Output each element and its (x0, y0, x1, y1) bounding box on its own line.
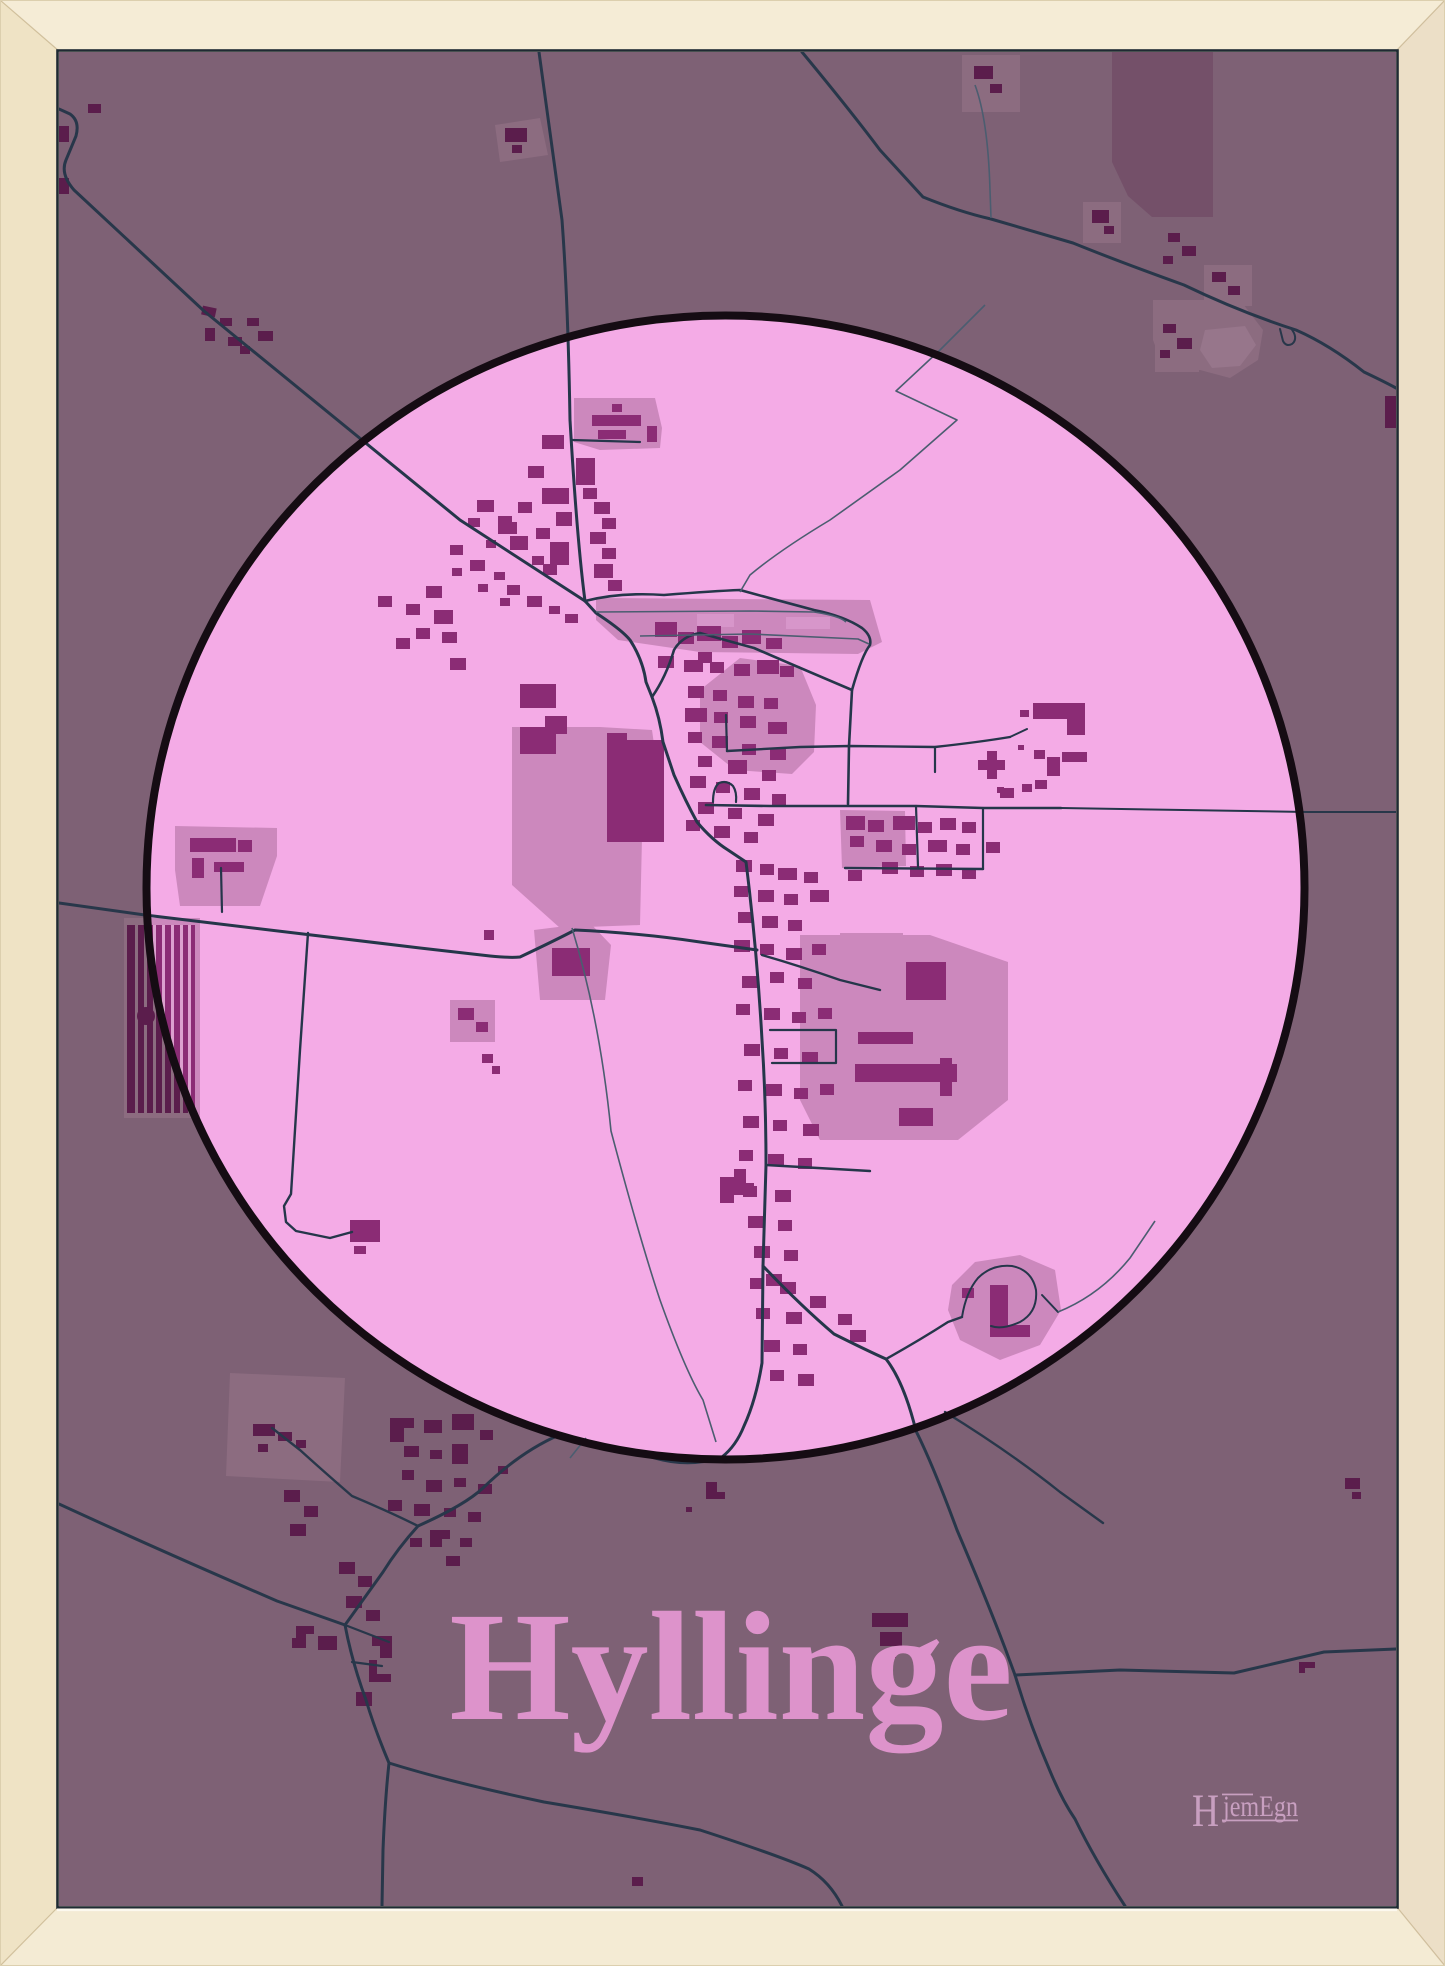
svg-text:Hyllinge: Hyllinge (449, 1580, 1012, 1754)
svg-text:H: H (1192, 1785, 1219, 1837)
